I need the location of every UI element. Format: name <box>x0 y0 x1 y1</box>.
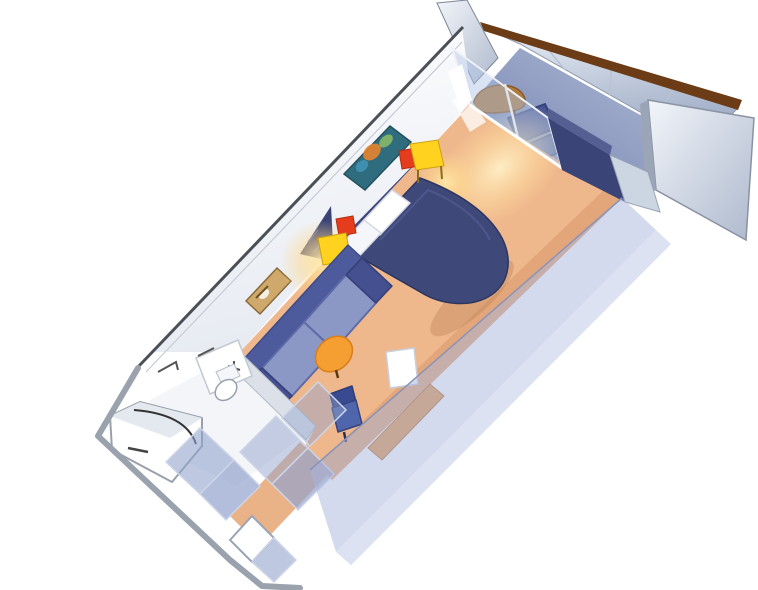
nightstand <box>410 140 444 170</box>
railing-divider <box>610 68 611 95</box>
nightstand-leg <box>441 166 442 179</box>
stateroom-render <box>0 0 758 590</box>
stateroom-floorplan <box>0 0 758 590</box>
